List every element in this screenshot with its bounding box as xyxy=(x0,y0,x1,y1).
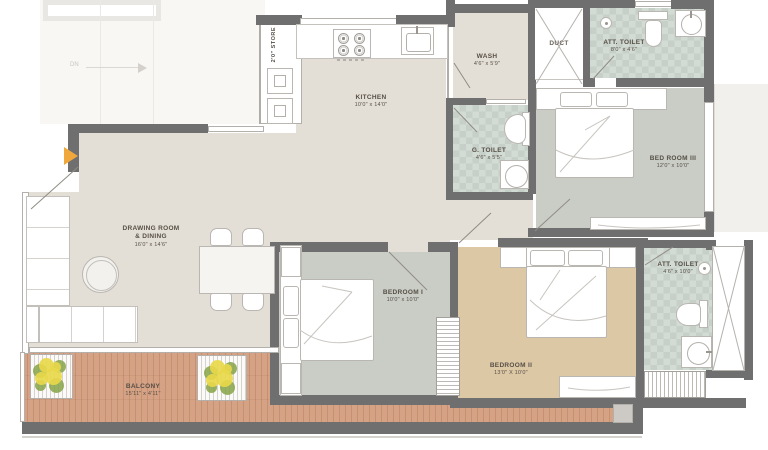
floor-plan: DN xyxy=(0,0,768,450)
att-toilet-top-label: ATT. TOILET 8'0" x 4'6" xyxy=(603,39,644,55)
nightstand xyxy=(281,363,301,394)
dining-table xyxy=(199,246,275,294)
sofa xyxy=(26,196,70,306)
wall xyxy=(704,88,714,102)
bedroom2-label: BEDROOM II 13'0" X 10'0" xyxy=(490,362,532,378)
store-label: 2'0" STORE xyxy=(271,27,277,62)
cabinet-inner xyxy=(274,105,286,117)
plant-icon xyxy=(31,356,71,396)
dining-chair xyxy=(210,228,232,246)
plant-icon xyxy=(202,358,242,398)
nightstand xyxy=(281,247,301,277)
ghost-neighbor-area xyxy=(714,84,768,232)
sink-icon xyxy=(401,27,434,55)
wall xyxy=(583,78,595,87)
pillow xyxy=(530,250,565,266)
dining-chair xyxy=(242,293,264,311)
washbasin-icon xyxy=(500,160,529,189)
bed xyxy=(526,266,607,338)
wc-icon xyxy=(638,11,668,20)
bed xyxy=(300,279,374,361)
dining-chair xyxy=(242,228,264,246)
pillow xyxy=(560,92,592,107)
ghost-lift-box xyxy=(43,0,161,21)
bed xyxy=(555,108,634,178)
window xyxy=(208,126,264,132)
wc-icon xyxy=(676,303,701,326)
wall xyxy=(453,98,486,105)
wall xyxy=(616,78,714,87)
wall xyxy=(583,8,590,82)
washbasin-icon xyxy=(675,10,706,37)
balcony-edge xyxy=(20,352,25,422)
wall xyxy=(446,192,533,200)
entry-arrow-icon xyxy=(64,147,78,165)
ghost-line xyxy=(153,0,154,124)
wall xyxy=(644,240,714,248)
kitchen-label: KITCHEN 10'0" x 14'0" xyxy=(355,94,388,110)
shower-icon xyxy=(600,17,612,29)
wall xyxy=(446,98,453,200)
wall xyxy=(498,238,648,247)
plot-edge-line xyxy=(22,436,642,438)
duct-label: DUCT xyxy=(549,40,568,48)
bedroom1-label: BEDROOM I 10'0" x 10'0" xyxy=(383,289,423,305)
bedroom3-window xyxy=(704,102,714,212)
wall xyxy=(534,0,635,8)
pillow xyxy=(568,250,603,266)
wardrobe xyxy=(644,371,706,398)
pillow xyxy=(596,92,628,107)
ghost-stair-arrow-line xyxy=(86,67,138,68)
coffee-table xyxy=(82,256,119,293)
pillow xyxy=(283,318,299,348)
duct-shaft xyxy=(712,246,745,371)
wardrobe xyxy=(436,317,460,396)
att-toilet-bottom-label: ATT. TOILET 4'6" x 10'0" xyxy=(657,261,698,277)
wall xyxy=(68,124,208,133)
nightstand xyxy=(500,247,527,268)
store-cabinet xyxy=(267,98,293,124)
window xyxy=(486,99,526,104)
drawing-room-label: DRAWING ROOM & DINING 16'0" x 14'6" xyxy=(122,225,179,249)
balcony-parapet xyxy=(22,422,642,434)
nightstand xyxy=(609,247,636,268)
stove-knobs xyxy=(337,59,367,61)
wash-label: WASH 4'6" x 5'9" xyxy=(474,53,500,69)
balcony-sliding-window xyxy=(29,347,279,353)
cabinet-inner xyxy=(274,75,286,87)
window xyxy=(635,1,673,7)
wall xyxy=(270,395,458,405)
shower-icon xyxy=(698,262,711,275)
bedroom3-label: BED ROOM III 12'0" x 10'0" xyxy=(650,155,697,171)
g-toilet-label: G. TOILET 4'6" x 5'5" xyxy=(472,147,506,163)
wall xyxy=(706,370,746,378)
pillow xyxy=(283,286,299,316)
passage-floor xyxy=(446,198,533,240)
store-cabinet xyxy=(267,68,293,94)
wall xyxy=(636,246,644,402)
wall xyxy=(744,240,753,380)
wc-icon xyxy=(504,114,526,144)
washbasin-icon xyxy=(681,336,712,368)
balcony-label: BALCONY 15'11" x 4'11" xyxy=(125,383,160,399)
stair-direction-label: DN xyxy=(70,62,79,68)
ghost-line xyxy=(100,0,101,124)
stove-icon xyxy=(333,29,371,58)
dresser xyxy=(559,376,636,398)
sofa xyxy=(39,306,138,343)
sofa-corner xyxy=(26,306,39,343)
wc-icon xyxy=(645,20,662,47)
balcony-step xyxy=(613,404,633,423)
dining-chair xyxy=(210,293,232,311)
low-cabinet xyxy=(590,217,706,230)
ghost-stair-arrow-icon xyxy=(138,63,147,73)
wall xyxy=(453,4,533,13)
wall xyxy=(646,398,746,408)
